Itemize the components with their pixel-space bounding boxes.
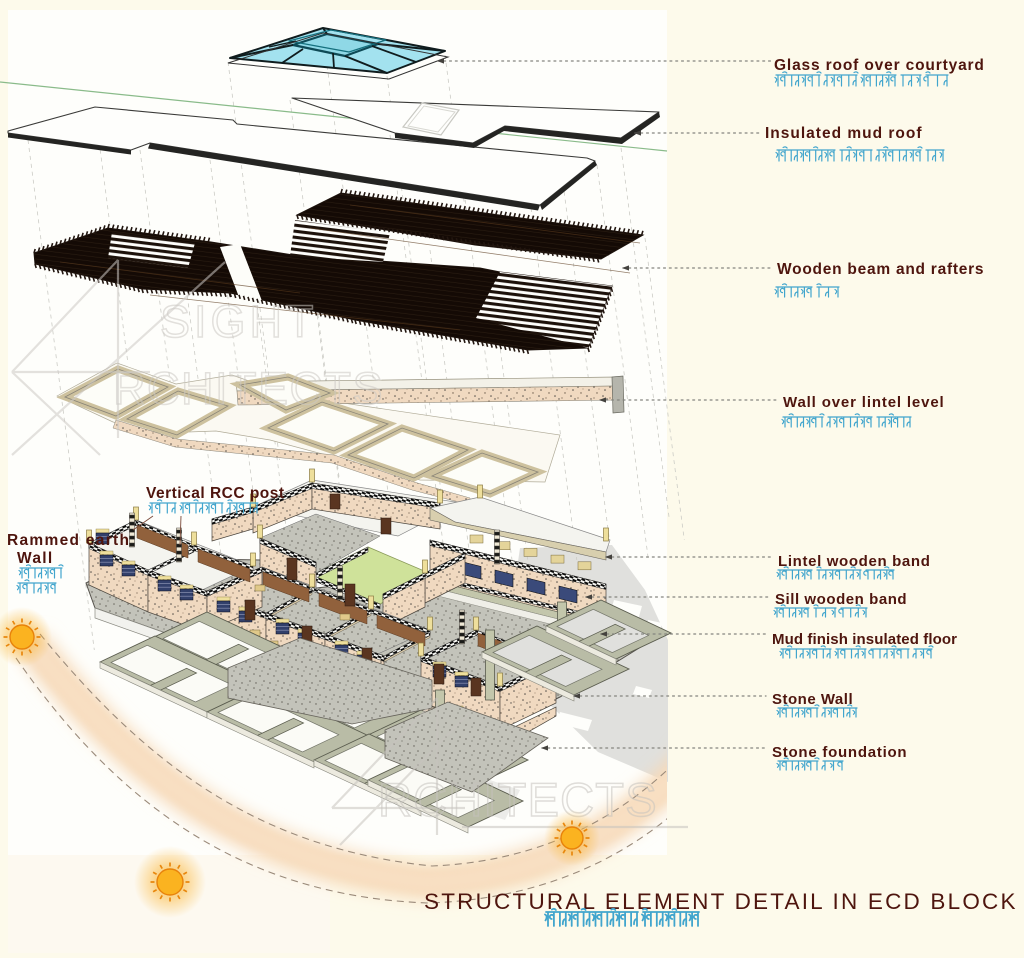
svg-text:Rammed earth: Rammed earth [7, 532, 130, 549]
svg-text:Wall over lintel level: Wall over lintel level [783, 394, 945, 411]
svg-text:Wall: Wall [17, 550, 54, 567]
svg-text:SIGHT: SIGHT [160, 296, 318, 347]
svg-text:Wooden beam and rafters: Wooden beam and rafters [777, 261, 984, 278]
svg-text:Mud finish insulated floor: Mud finish insulated floor [772, 631, 957, 648]
svg-text:Glass roof over courtyard: Glass roof over courtyard [774, 57, 985, 74]
svg-text:Stone foundation: Stone foundation [772, 744, 907, 761]
svg-text:Vertical RCC post: Vertical RCC post [146, 485, 285, 502]
svg-text:Insulated mud roof: Insulated mud roof [765, 125, 923, 142]
svg-text:Sill wooden band: Sill wooden band [775, 591, 907, 608]
svg-text:RCHITECTS: RCHITECTS [113, 363, 384, 414]
svg-text:RCHITECTS: RCHITECTS [378, 773, 658, 826]
svg-text:STRUCTURAL ELEMENT DETAIL IN E: STRUCTURAL ELEMENT DETAIL IN ECD BLOCK [424, 889, 1018, 914]
